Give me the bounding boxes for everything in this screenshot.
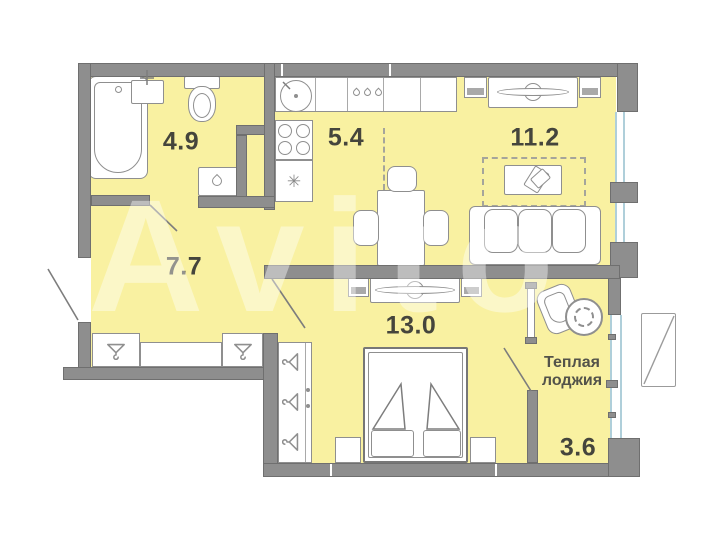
room-area-bedroom: 13.0	[386, 312, 437, 341]
stove-burner	[278, 141, 292, 155]
wall-hall-bedroom	[263, 333, 278, 467]
wall-loggia-right-top	[608, 278, 621, 315]
hanger-icon	[282, 431, 302, 453]
room-area-bathroom: 4.9	[163, 128, 199, 157]
wall-loggia-corner	[608, 438, 640, 477]
door-swing	[48, 269, 78, 320]
wall-left-upper	[78, 63, 91, 258]
nightstand	[470, 437, 496, 463]
side-table	[464, 77, 487, 98]
wardrobe-knob	[306, 388, 310, 392]
window-mullion	[608, 412, 616, 418]
nightstand	[335, 437, 361, 463]
hanger-icon	[105, 340, 127, 360]
window-mullion	[606, 380, 618, 388]
side-table-shadow	[464, 287, 479, 294]
stove-burner	[296, 141, 310, 155]
wall-joint	[495, 464, 497, 476]
kitchen-sink-drain	[294, 94, 298, 98]
wardrobe-door-line	[305, 343, 306, 462]
window-living-2	[615, 203, 625, 242]
bath-sink-icon	[131, 80, 164, 104]
loggia-name-line1: Теплая	[542, 354, 602, 372]
hanger-icon	[282, 351, 302, 373]
room-area-living: 11.2	[510, 124, 559, 153]
chair	[353, 210, 379, 246]
floor-plan: ✳	[0, 0, 720, 540]
side-table-shadow	[467, 88, 484, 95]
sofa-cushion	[484, 209, 518, 253]
side-table-shadow	[351, 287, 366, 294]
wall-joint	[330, 464, 332, 476]
stove-burner	[296, 124, 310, 138]
wall-top	[78, 63, 638, 77]
counter-divider	[347, 78, 348, 111]
dining-table	[377, 190, 425, 266]
wall-bath-bottom-left	[91, 195, 150, 206]
room-area-hallway: 7.7	[166, 253, 202, 282]
toilet-bowl	[193, 93, 211, 118]
wall-window-pier	[610, 182, 638, 203]
wall-right-top	[617, 63, 638, 112]
loggia-name: Теплая лоджия	[542, 354, 602, 390]
side-table-shadow	[582, 88, 598, 95]
counter-divider	[315, 78, 316, 111]
room-area-kitchen: 5.4	[328, 124, 364, 153]
hanger-icon	[282, 391, 302, 413]
tv-icon	[375, 286, 455, 294]
wall-bottom	[263, 463, 640, 477]
washer-drum	[574, 307, 594, 327]
loggia-name-line2: лоджия	[542, 372, 602, 390]
loggia-door-leaf	[527, 282, 535, 344]
snowflake-icon: ✳	[287, 172, 301, 192]
window-mullion	[608, 334, 616, 340]
wall-joint	[389, 64, 391, 76]
wall-bedroom-loggia-stub	[527, 390, 538, 463]
door-hinge	[525, 282, 537, 289]
counter-divider	[383, 78, 384, 111]
tv-icon	[497, 88, 569, 96]
wall-bath-bottom-right	[198, 196, 275, 208]
hall-shelf	[140, 342, 222, 367]
hanger-icon	[232, 340, 254, 360]
wall-left-lower	[78, 322, 91, 369]
ac-basket	[641, 313, 676, 387]
window-living-1	[615, 112, 625, 182]
counter-divider	[420, 78, 421, 111]
chair	[423, 210, 449, 246]
stove-burner	[278, 124, 292, 138]
kitchen-zone-divider	[383, 128, 385, 190]
wall-bath-niche-leg	[236, 135, 247, 197]
chair	[387, 166, 417, 192]
wall-living-bedroom	[264, 265, 620, 279]
sofa-cushion	[518, 209, 552, 253]
side-table	[579, 77, 601, 98]
bathtub-drain	[115, 86, 122, 93]
wall-hall-bottom	[63, 367, 278, 380]
wall-bath-kitchen	[264, 63, 275, 210]
pillow	[423, 430, 461, 457]
door-hinge	[525, 337, 537, 344]
pillow	[371, 430, 414, 457]
sofa-cushion	[552, 209, 586, 253]
wardrobe-knob	[306, 404, 310, 408]
wall-joint	[281, 64, 283, 76]
wall-bath-niche-bar	[236, 125, 265, 135]
room-area-loggia: 3.6	[560, 434, 596, 463]
